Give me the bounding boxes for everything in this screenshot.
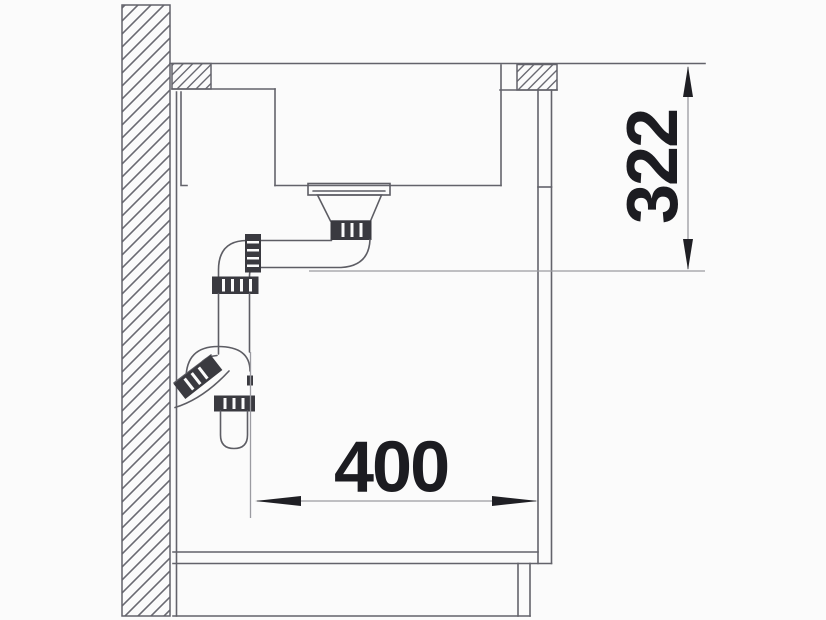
countertop bbox=[170, 64, 705, 91]
dimension-vertical: 322 bbox=[309, 66, 705, 271]
dim-h-arrow-left bbox=[255, 496, 301, 506]
base-cabinet bbox=[173, 90, 552, 616]
dimension-horizontal: 400 bbox=[251, 352, 539, 518]
dim-v-arrow-down bbox=[683, 239, 693, 270]
strainer-body bbox=[318, 195, 382, 221]
installation-drawing-canvas: 322 400 bbox=[0, 0, 826, 620]
sink-bowl bbox=[181, 65, 501, 186]
countertop-cut-right bbox=[517, 65, 557, 91]
elbow-nut bbox=[213, 277, 259, 294]
dimension-label-vertical: 322 bbox=[613, 110, 693, 224]
strainer-locknut bbox=[331, 221, 371, 240]
wall-section bbox=[122, 5, 170, 616]
tailpiece-inner bbox=[219, 241, 332, 279]
pipe-collar-vertical bbox=[246, 235, 261, 273]
countertop-cut-left bbox=[172, 64, 211, 90]
drain-assembly bbox=[174, 184, 390, 449]
wall-hatch bbox=[122, 5, 170, 616]
cleanout-nut bbox=[215, 396, 255, 411]
dim-h-arrow-right bbox=[492, 496, 538, 506]
bowl-back-edge bbox=[181, 92, 187, 186]
tailpiece-outer bbox=[250, 240, 371, 279]
dim-v-arrow-up bbox=[683, 66, 693, 97]
technical-drawing: 322 400 bbox=[0, 0, 826, 620]
cleanout-cup bbox=[221, 411, 248, 449]
dimension-label-horizontal: 400 bbox=[334, 428, 448, 508]
